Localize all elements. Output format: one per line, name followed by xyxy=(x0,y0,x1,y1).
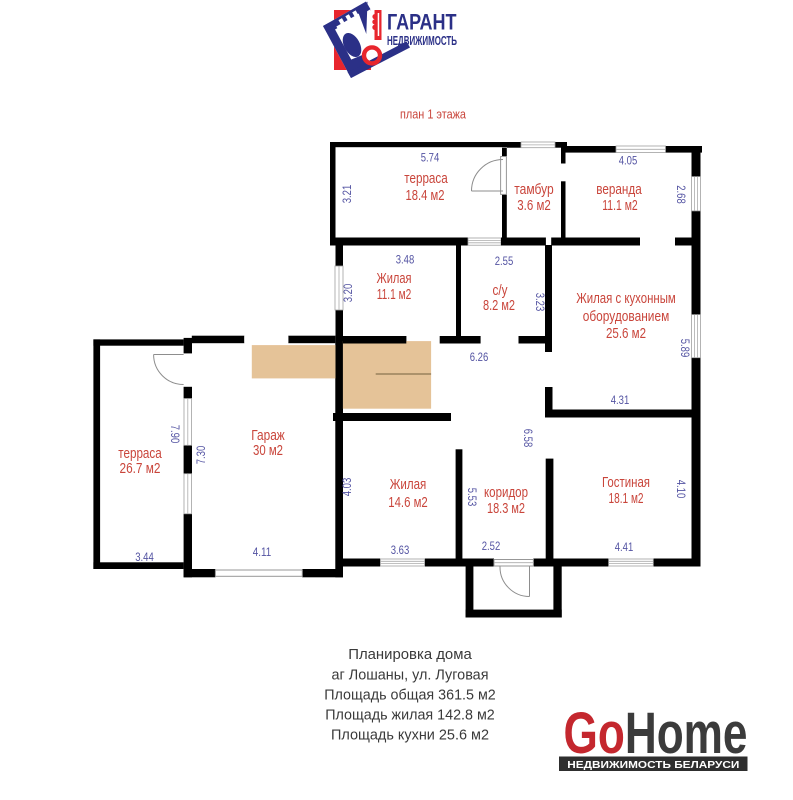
svg-text:18.4 м2: 18.4 м2 xyxy=(406,188,445,204)
svg-text:аг Лошаны, ул. Луговая: аг Лошаны, ул. Луговая xyxy=(332,667,489,684)
svg-text:Планировка дома: Планировка дома xyxy=(348,646,472,663)
svg-text:26.7 м2: 26.7 м2 xyxy=(120,461,161,477)
svg-text:3.48: 3.48 xyxy=(396,253,415,267)
svg-text:3.20: 3.20 xyxy=(341,283,355,302)
svg-text:5.89: 5.89 xyxy=(678,339,692,358)
svg-text:4.41: 4.41 xyxy=(615,540,634,554)
svg-text:4.11: 4.11 xyxy=(253,545,272,559)
svg-text:оборудованием: оборудованием xyxy=(583,309,670,325)
svg-text:6.26: 6.26 xyxy=(470,350,489,364)
svg-text:Жилая с кухонным: Жилая с кухонным xyxy=(576,291,676,307)
svg-text:терраса: терраса xyxy=(404,171,448,187)
svg-text:Площадь жилая 142.8 м2: Площадь жилая 142.8 м2 xyxy=(325,707,495,724)
svg-text:6.58: 6.58 xyxy=(521,429,535,448)
svg-text:Жилая: Жилая xyxy=(377,271,412,287)
svg-text:3.23: 3.23 xyxy=(533,293,547,312)
svg-text:4.31: 4.31 xyxy=(611,393,630,407)
svg-text:3.44: 3.44 xyxy=(135,550,154,564)
svg-text:7.90: 7.90 xyxy=(168,425,182,444)
svg-text:3.21: 3.21 xyxy=(340,185,354,204)
svg-text:11.1 м2: 11.1 м2 xyxy=(377,287,412,303)
svg-text:коридор: коридор xyxy=(484,485,528,501)
svg-text:3.63: 3.63 xyxy=(391,543,410,557)
svg-text:Жилая: Жилая xyxy=(390,477,427,493)
svg-text:18.3 м2: 18.3 м2 xyxy=(487,501,525,517)
svg-text:Гостиная: Гостиная xyxy=(602,475,650,491)
svg-text:Гараж: Гараж xyxy=(251,428,285,444)
svg-text:14.6 м2: 14.6 м2 xyxy=(388,495,428,511)
svg-text:НЕДВИЖИМОСТЬ: НЕДВИЖИМОСТЬ xyxy=(387,34,457,48)
svg-text:2.68: 2.68 xyxy=(674,185,688,204)
svg-text:план 1 этажа: план 1 этажа xyxy=(400,107,467,122)
svg-text:3.6 м2: 3.6 м2 xyxy=(517,198,551,214)
svg-text:4.05: 4.05 xyxy=(619,154,638,168)
svg-text:веранда: веранда xyxy=(596,182,642,198)
svg-text:ГАРАНТ: ГАРАНТ xyxy=(387,10,457,35)
svg-text:НЕДВИЖИМОСТЬ БЕЛАРУСИ: НЕДВИЖИМОСТЬ БЕЛАРУСИ xyxy=(567,759,739,771)
svg-text:2.55: 2.55 xyxy=(495,254,514,268)
svg-text:Площадь общая 361.5 м2: Площадь общая 361.5 м2 xyxy=(324,687,496,704)
svg-text:GoHome: GoHome xyxy=(564,701,748,766)
svg-text:5.74: 5.74 xyxy=(421,151,440,165)
svg-text:30 м2: 30 м2 xyxy=(253,443,283,459)
svg-text:11.1 м2: 11.1 м2 xyxy=(602,198,638,214)
svg-text:2.52: 2.52 xyxy=(482,539,501,553)
svg-text:7.30: 7.30 xyxy=(194,445,208,464)
svg-text:18.1 м2: 18.1 м2 xyxy=(609,491,644,507)
svg-text:8.2 м2: 8.2 м2 xyxy=(483,298,515,314)
svg-text:4.03: 4.03 xyxy=(340,477,354,496)
svg-text:с/у: с/у xyxy=(493,283,509,299)
svg-text:4.10: 4.10 xyxy=(674,480,688,499)
svg-text:5.53: 5.53 xyxy=(465,488,479,507)
svg-text:тамбур: тамбур xyxy=(514,182,554,198)
svg-text:терраса: терраса xyxy=(118,446,162,462)
svg-text:Площадь кухни 25.6 м2: Площадь кухни 25.6 м2 xyxy=(331,727,489,744)
svg-text:25.6 м2: 25.6 м2 xyxy=(606,326,646,342)
